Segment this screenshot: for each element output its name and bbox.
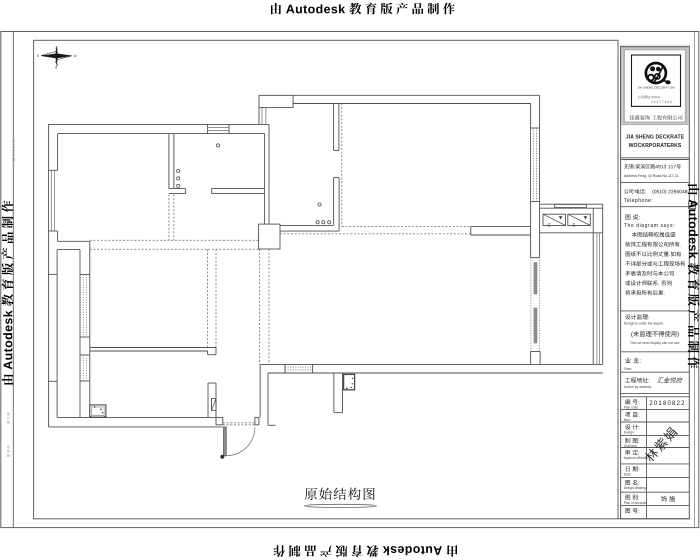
svg-text:Own:: Own:: [624, 367, 632, 371]
svg-text:Design to enter the depart.: Design to enter the depart.: [624, 322, 664, 326]
svg-text:Did not send display can not u: Did not send display can not use: [630, 341, 679, 345]
svg-text:Item:: Item:: [624, 418, 631, 422]
svg-text:Address:Feng, Qi Road No.117-1: Address:Feng, Qi Road No.117-11: [624, 174, 679, 178]
svg-text:Design drawing.: Design drawing.: [624, 486, 647, 490]
svg-text:WOCKRPORATERKS: WOCKRPORATERKS: [629, 143, 682, 149]
svg-text:JIA SHENG DECKRATE: JIA SHENG DECKRATE: [626, 135, 685, 141]
svg-text:Plan code:: Plan code:: [624, 405, 639, 409]
svg-text:Design:: Design:: [624, 431, 635, 435]
svg-text:Approve officially.: Approve officially.: [624, 456, 649, 460]
svg-text:Telephone:: Telephone:: [624, 198, 653, 204]
svg-text:Graphics:: Graphics:: [624, 444, 638, 448]
svg-text:Plan of decorate: Plan of decorate: [624, 501, 647, 505]
svg-text:Date:: Date:: [624, 473, 632, 477]
svg-text:Author by address: Author by address: [624, 385, 652, 389]
svg-text:The diagram says:: The diagram says:: [624, 223, 675, 229]
svg-text:20180822: 20180822: [649, 401, 685, 407]
